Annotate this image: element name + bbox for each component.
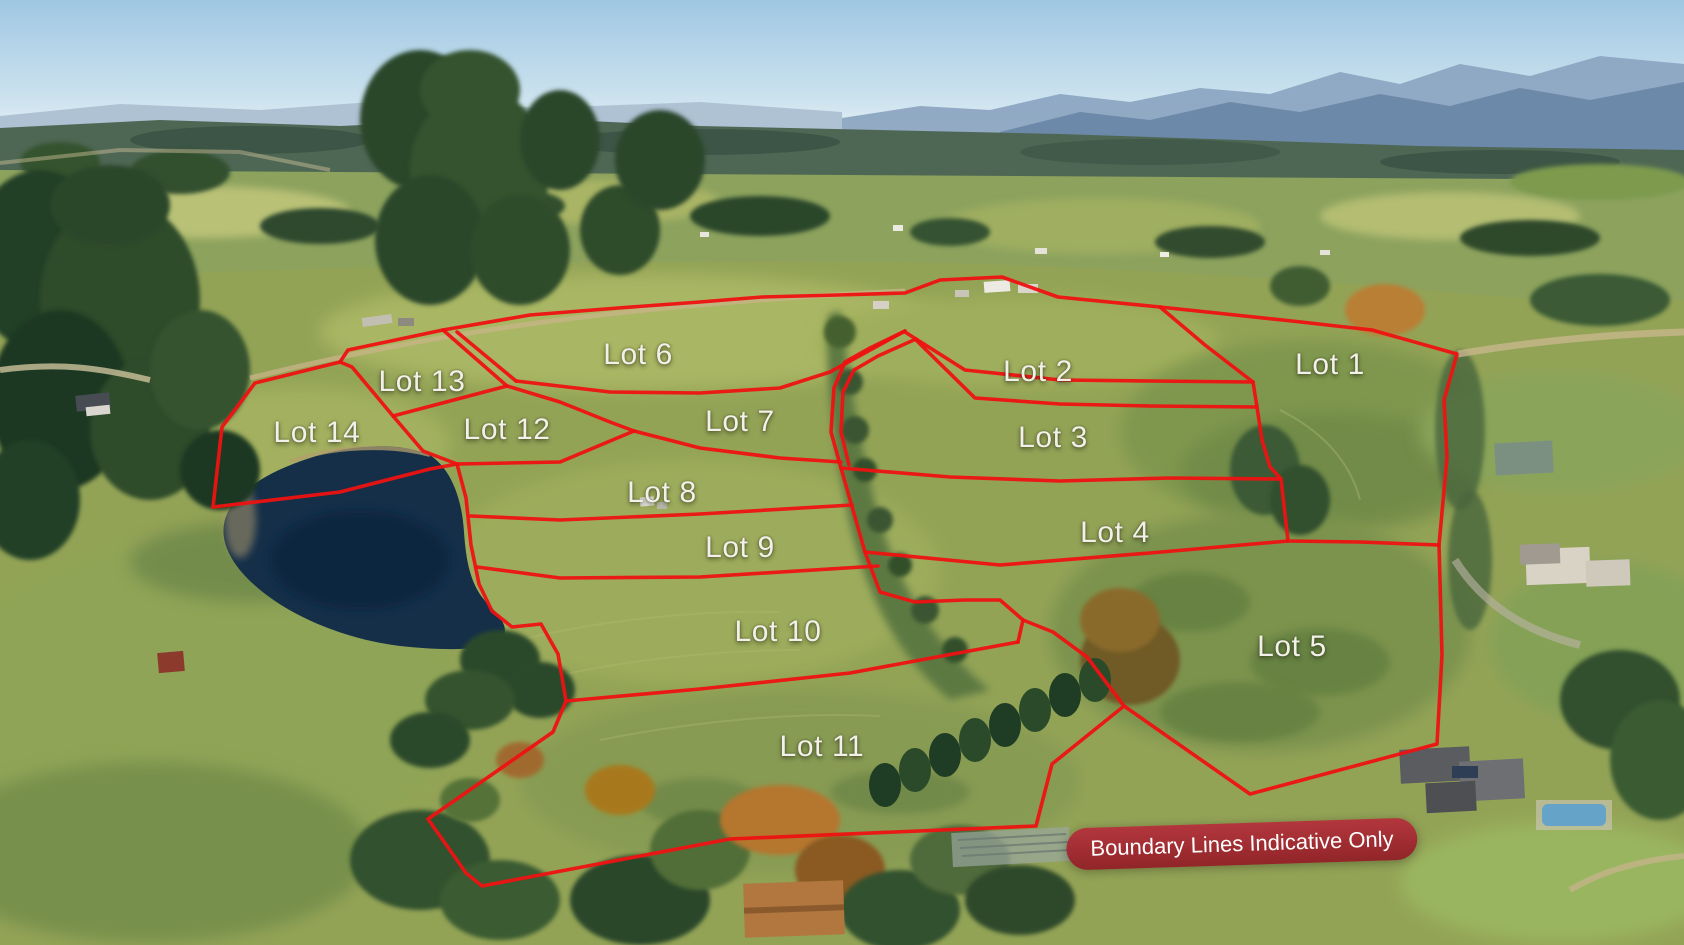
lot-label-lot-6: Lot 6 (603, 338, 673, 372)
lot-label-lot-4: Lot 4 (1080, 516, 1150, 550)
lot-label-lot-13: Lot 13 (378, 365, 465, 399)
lot-label-lot-11: Lot 11 (780, 730, 865, 764)
lot-label-lot-10: Lot 10 (734, 615, 821, 649)
lot-label-lot-5: Lot 5 (1257, 630, 1327, 664)
aerial-subdivision-photo: Lot 1Lot 2Lot 3Lot 4Lot 5Lot 6Lot 7Lot 8… (0, 0, 1684, 945)
lot-label-lot-14: Lot 14 (273, 416, 360, 450)
lot-label-lot-12: Lot 12 (464, 413, 551, 447)
lot-label-lot-7: Lot 7 (705, 405, 775, 439)
lot-label-lot-9: Lot 9 (705, 531, 775, 565)
lot-label-lot-2: Lot 2 (1003, 355, 1073, 389)
lot-label-lot-8: Lot 8 (627, 476, 697, 510)
lot-label-lot-1: Lot 1 (1295, 348, 1365, 382)
lot-label-lot-3: Lot 3 (1018, 421, 1088, 455)
lot-labels-layer: Lot 1Lot 2Lot 3Lot 4Lot 5Lot 6Lot 7Lot 8… (0, 0, 1684, 945)
